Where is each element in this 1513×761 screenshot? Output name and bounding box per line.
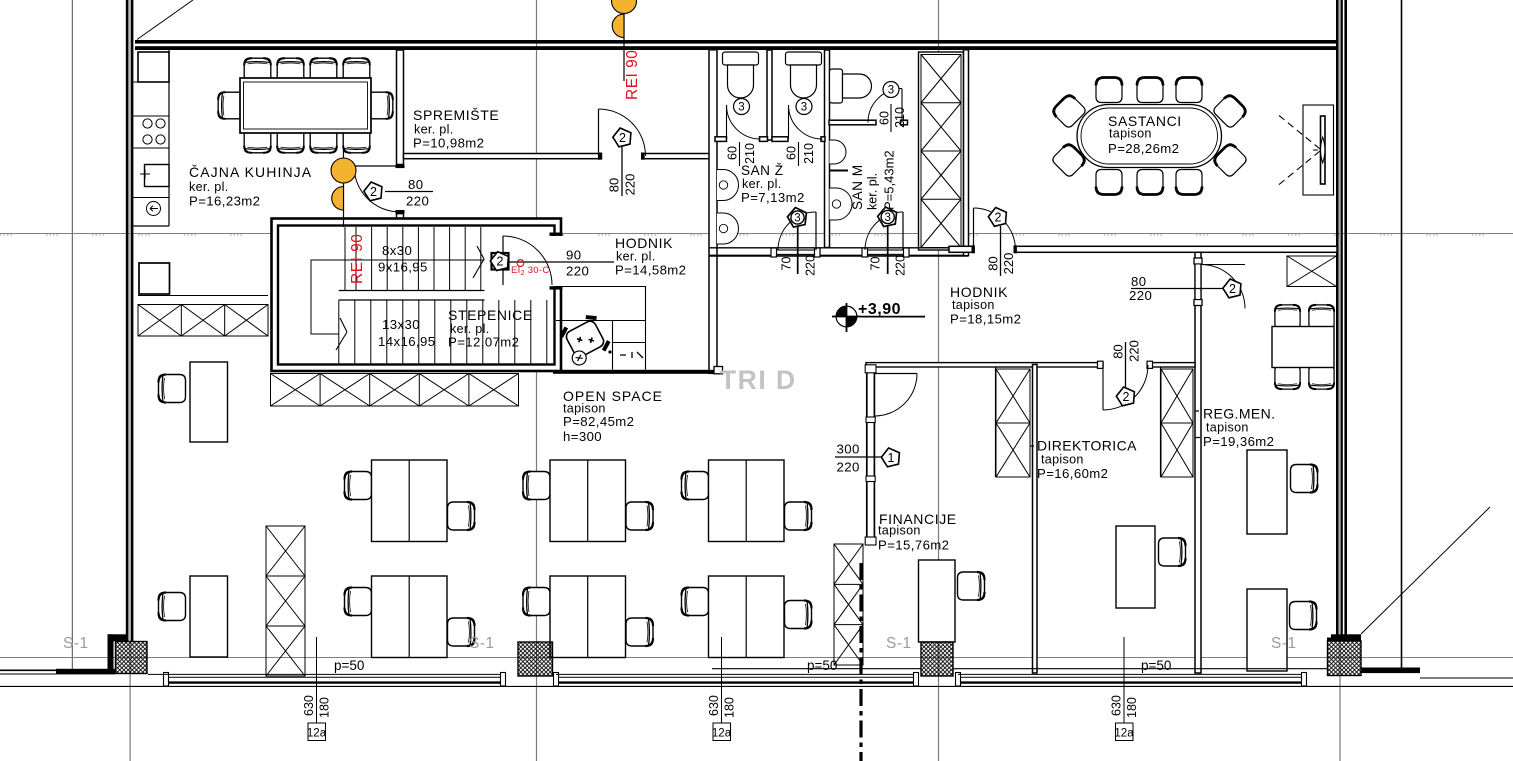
svg-text:14x16,95: 14x16,95 (378, 334, 435, 349)
svg-text:630: 630 (302, 695, 316, 716)
svg-text:12a: 12a (1114, 728, 1134, 740)
svg-text:tapison: tapison (1041, 453, 1084, 467)
svg-text:ker. pl.: ker. pl. (414, 123, 454, 137)
svg-text:ker. pl.: ker. pl. (866, 173, 880, 210)
svg-text:80: 80 (1111, 344, 1126, 358)
svg-text:P=82,45m2: P=82,45m2 (563, 414, 634, 429)
svg-text:P=10,98m2: P=10,98m2 (413, 136, 484, 151)
svg-text:80: 80 (986, 256, 1001, 270)
svg-text:60: 60 (785, 146, 799, 160)
svg-text:P=16,60m2: P=16,60m2 (1037, 466, 1108, 481)
svg-text:P=19,36m2: P=19,36m2 (1203, 434, 1274, 449)
svg-text:P=5,43m2: P=5,43m2 (882, 150, 897, 210)
svg-text:TRI D: TRI D (720, 365, 797, 395)
svg-text:ČAJNA KUHINJA: ČAJNA KUHINJA (189, 164, 312, 180)
svg-text:ker. pl.: ker. pl. (742, 177, 782, 191)
svg-text:300: 300 (837, 442, 860, 457)
svg-text:ker. pl.: ker. pl. (189, 180, 229, 194)
svg-text:3: 3 (884, 212, 890, 224)
svg-text:tapison: tapison (1206, 421, 1249, 435)
svg-text:220: 220 (406, 194, 429, 209)
svg-text:SPREMIŠTE: SPREMIŠTE (413, 107, 499, 123)
svg-text:180: 180 (723, 697, 737, 718)
svg-text:tapison: tapison (952, 298, 995, 312)
svg-text:220: 220 (566, 264, 589, 279)
svg-text:S-1: S-1 (63, 635, 89, 652)
svg-text:P=12,07m2: P=12,07m2 (448, 335, 519, 350)
svg-text:REI 90: REI 90 (349, 234, 366, 284)
svg-text:p=50: p=50 (807, 658, 837, 673)
svg-text:8x30: 8x30 (382, 243, 412, 258)
svg-text:p=50: p=50 (334, 658, 364, 673)
svg-text:tapison: tapison (878, 524, 921, 538)
svg-text:p=50: p=50 (1141, 658, 1171, 673)
svg-text:P=28,26m2: P=28,26m2 (1108, 141, 1179, 156)
svg-text:ker. pl.: ker. pl. (616, 250, 656, 264)
svg-text:12a: 12a (712, 728, 732, 740)
svg-text:REG.MEN.: REG.MEN. (1203, 406, 1275, 422)
svg-text:220: 220 (1001, 253, 1016, 275)
svg-text:220: 220 (837, 460, 860, 475)
svg-text:S-1: S-1 (886, 635, 912, 652)
svg-text:630: 630 (707, 695, 721, 716)
svg-text:2: 2 (995, 210, 1002, 224)
svg-text:70: 70 (869, 257, 883, 271)
svg-text:9x16,95: 9x16,95 (378, 260, 428, 275)
svg-text:210: 210 (743, 143, 757, 164)
svg-text:P=14,58m2: P=14,58m2 (615, 263, 686, 278)
svg-text:EI2 30-C: EI2 30-C (511, 265, 550, 277)
svg-text:60: 60 (878, 111, 892, 125)
svg-text:tapison: tapison (1109, 127, 1152, 141)
svg-text:13x30: 13x30 (382, 317, 420, 332)
svg-text:SAN Ž: SAN Ž (741, 163, 784, 178)
svg-text:180: 180 (1125, 697, 1139, 718)
svg-text:220: 220 (623, 174, 638, 196)
svg-text:h=300: h=300 (563, 429, 602, 444)
svg-text:220: 220 (1127, 340, 1142, 362)
svg-text:70: 70 (780, 257, 794, 271)
svg-text:P=15,76m2: P=15,76m2 (878, 538, 949, 553)
svg-text:STEPENICE: STEPENICE (448, 307, 533, 323)
svg-text:2: 2 (619, 131, 626, 145)
svg-text:80: 80 (1131, 274, 1146, 289)
svg-text:P=16,23m2: P=16,23m2 (189, 194, 260, 209)
svg-text:1: 1 (888, 451, 895, 465)
svg-text:P=18,15m2: P=18,15m2 (950, 312, 1021, 327)
svg-text:REI 90: REI 90 (624, 50, 641, 100)
svg-text:210: 210 (802, 143, 816, 164)
svg-text:80: 80 (408, 177, 423, 192)
svg-text:+3,90: +3,90 (858, 301, 901, 318)
svg-text:80: 80 (607, 178, 622, 192)
svg-text:220: 220 (894, 255, 908, 276)
svg-text:220: 220 (1129, 288, 1152, 303)
svg-text:SAN M: SAN M (850, 164, 865, 210)
svg-text:2: 2 (1123, 390, 1130, 404)
svg-text:2: 2 (497, 255, 504, 269)
svg-text:12a: 12a (307, 728, 327, 740)
svg-text:S-1: S-1 (469, 635, 495, 652)
svg-text:220: 220 (804, 255, 818, 276)
svg-text:3: 3 (801, 102, 807, 114)
svg-text:S-1: S-1 (1271, 635, 1297, 652)
svg-text:90: 90 (566, 248, 581, 263)
svg-text:2: 2 (370, 185, 377, 199)
svg-text:60: 60 (726, 146, 740, 160)
svg-text:3: 3 (888, 85, 894, 97)
svg-text:180: 180 (318, 697, 332, 718)
svg-text:P=7,13m2: P=7,13m2 (741, 190, 805, 205)
svg-text:DIREKTORICA: DIREKTORICA (1037, 438, 1137, 454)
svg-text:3: 3 (794, 213, 800, 225)
svg-text:630: 630 (1110, 695, 1124, 716)
svg-text:210: 210 (893, 107, 907, 128)
svg-text:2: 2 (1229, 282, 1236, 296)
svg-text:3: 3 (738, 102, 744, 114)
